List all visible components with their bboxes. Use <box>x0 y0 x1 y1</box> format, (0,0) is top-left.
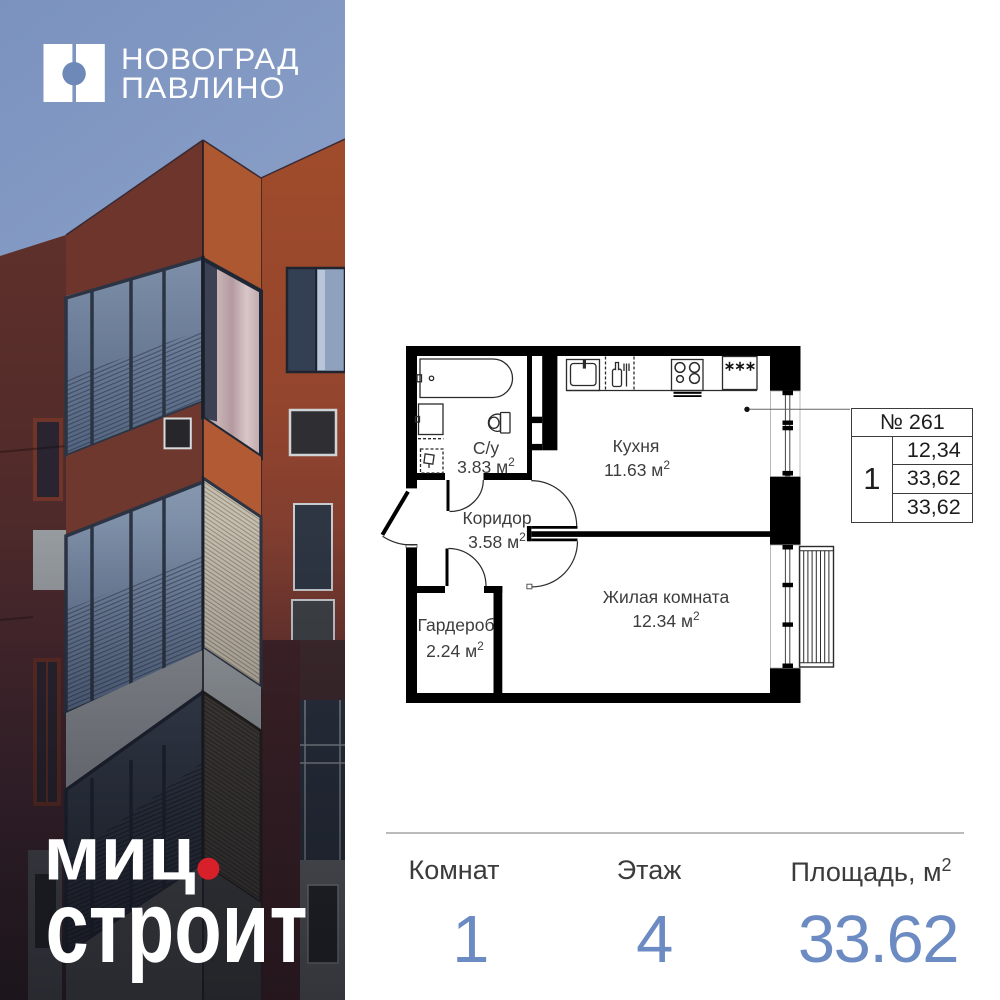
svg-text:строит: строит <box>46 870 308 984</box>
svg-text:ПАВЛИНО: ПАВЛИНО <box>121 72 286 105</box>
